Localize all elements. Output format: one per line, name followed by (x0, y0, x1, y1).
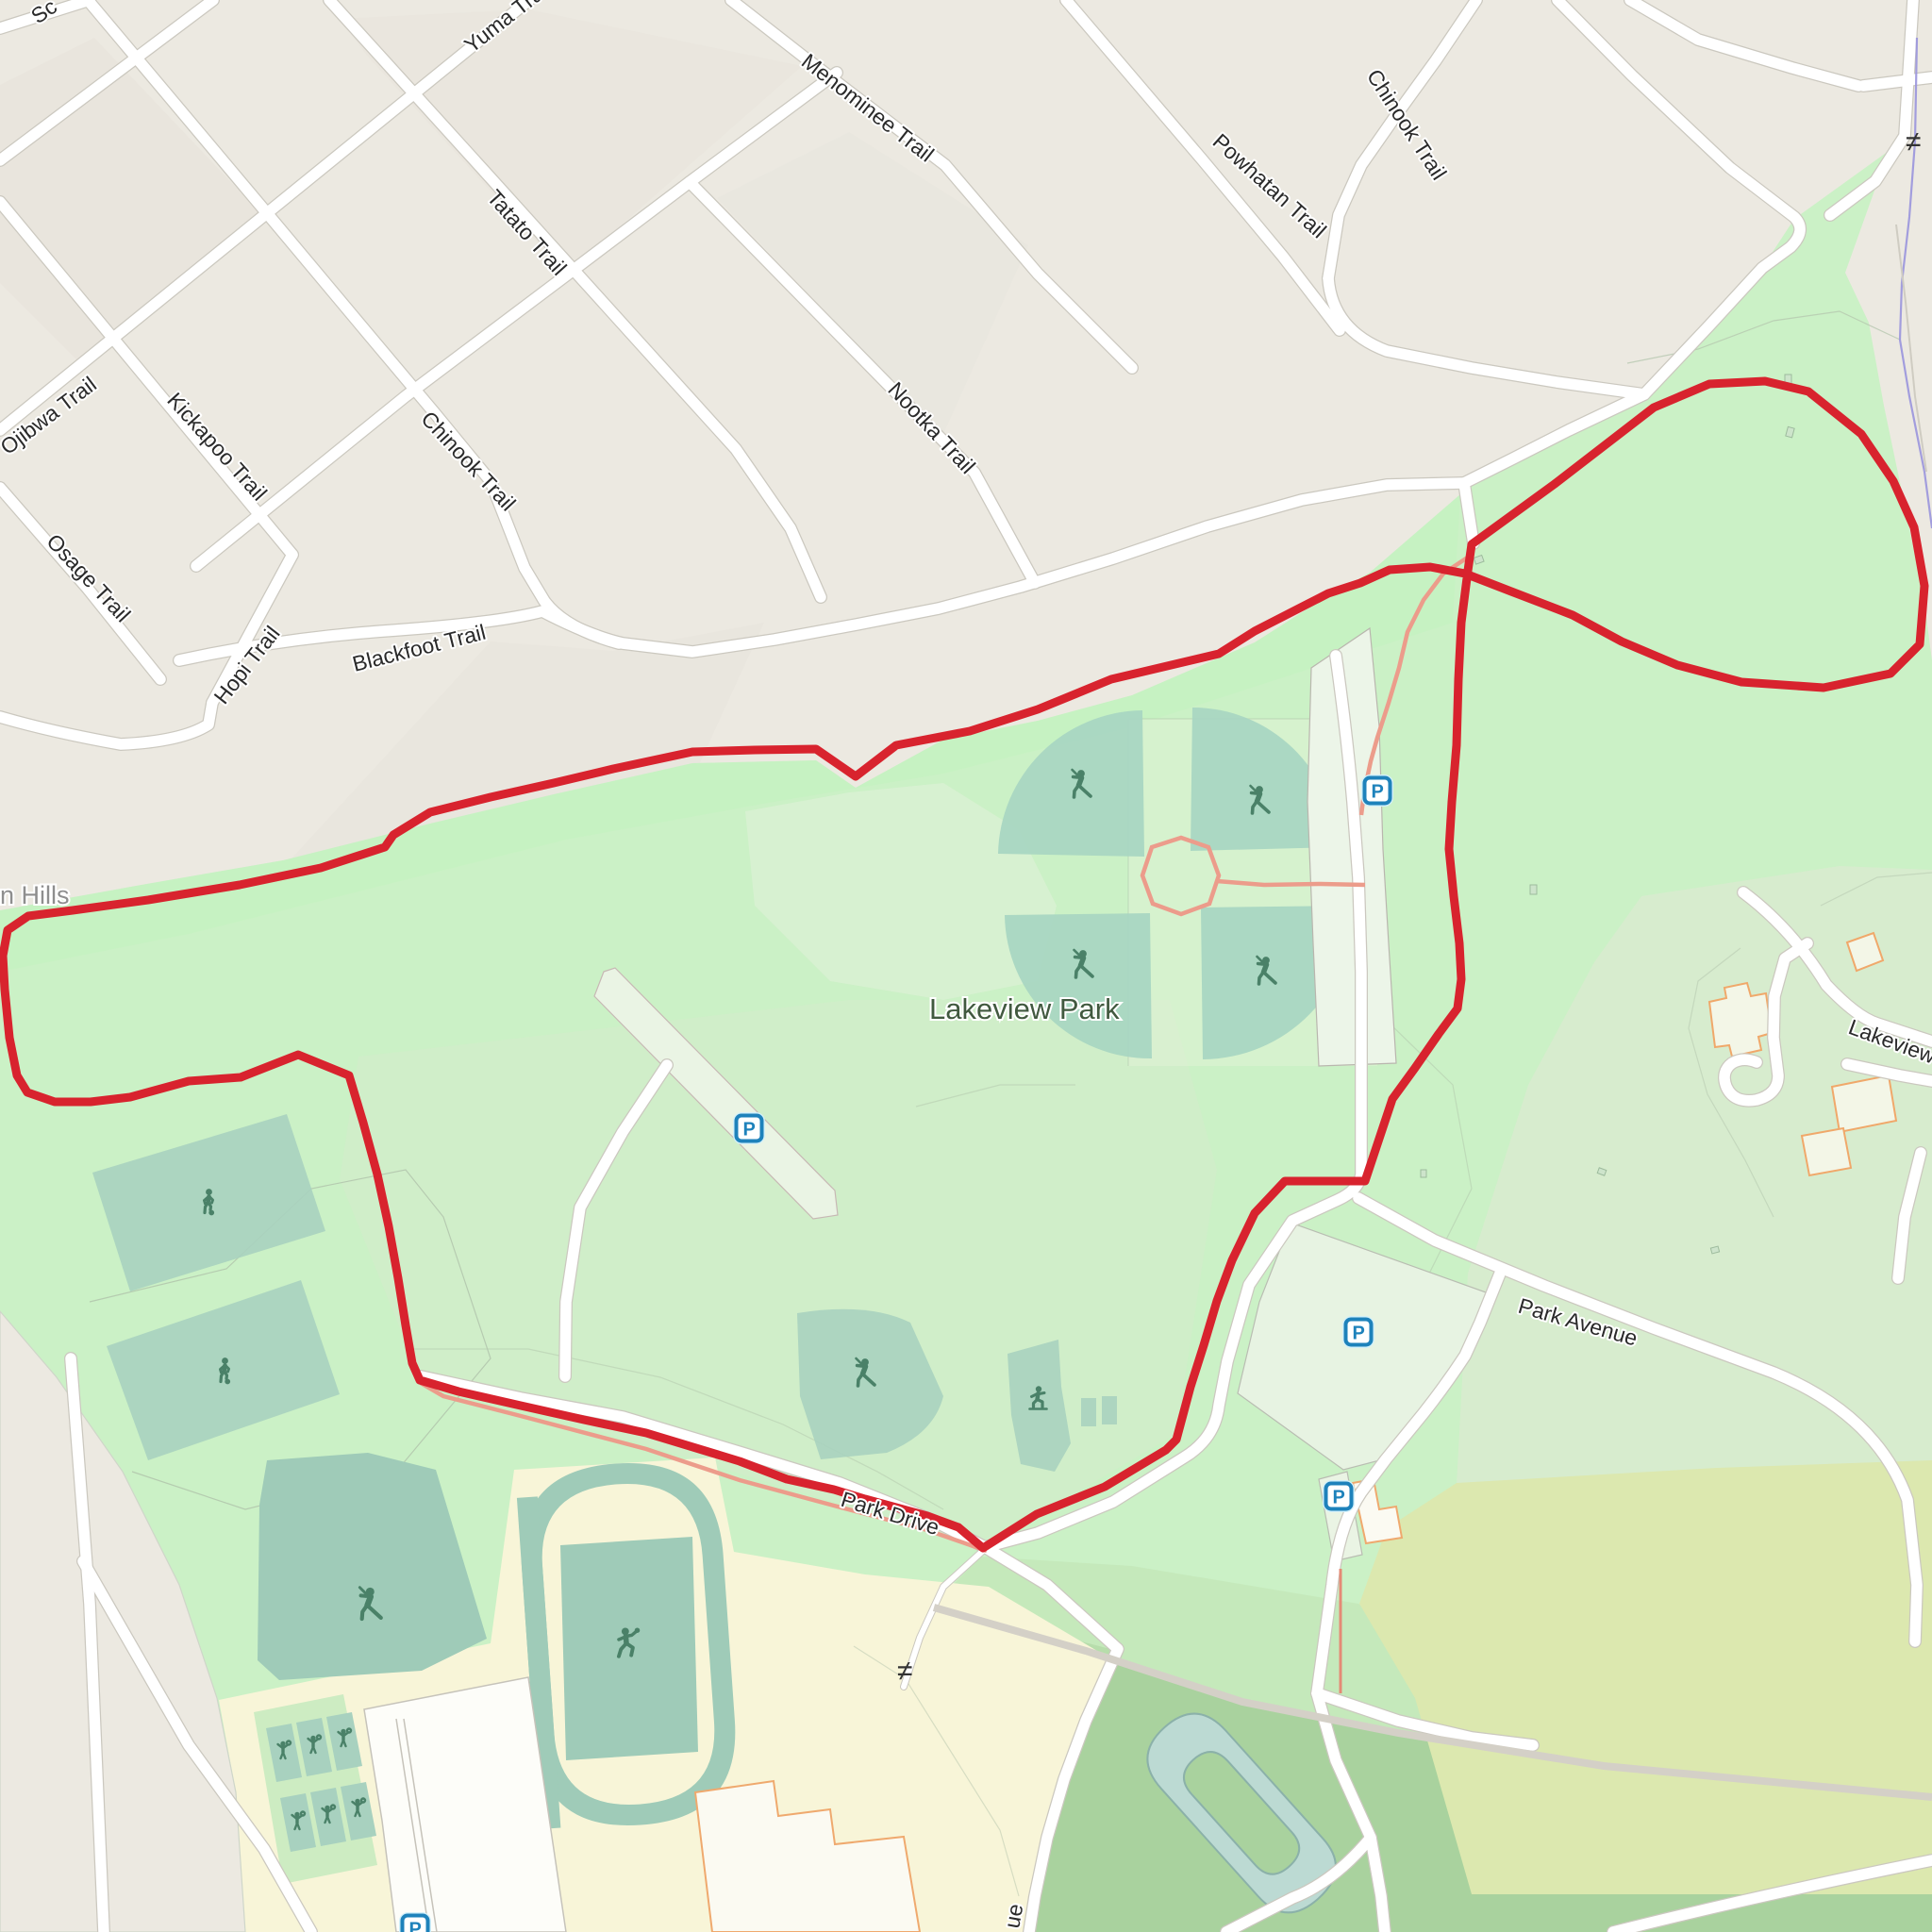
svg-text:Lakeview Park: Lakeview Park (929, 992, 1120, 1025)
svg-text:ue: ue (999, 1902, 1027, 1930)
svg-text:n Hills: n Hills (0, 881, 70, 909)
svg-text:≠: ≠ (897, 1656, 912, 1687)
svg-text:≠: ≠ (1906, 126, 1921, 158)
